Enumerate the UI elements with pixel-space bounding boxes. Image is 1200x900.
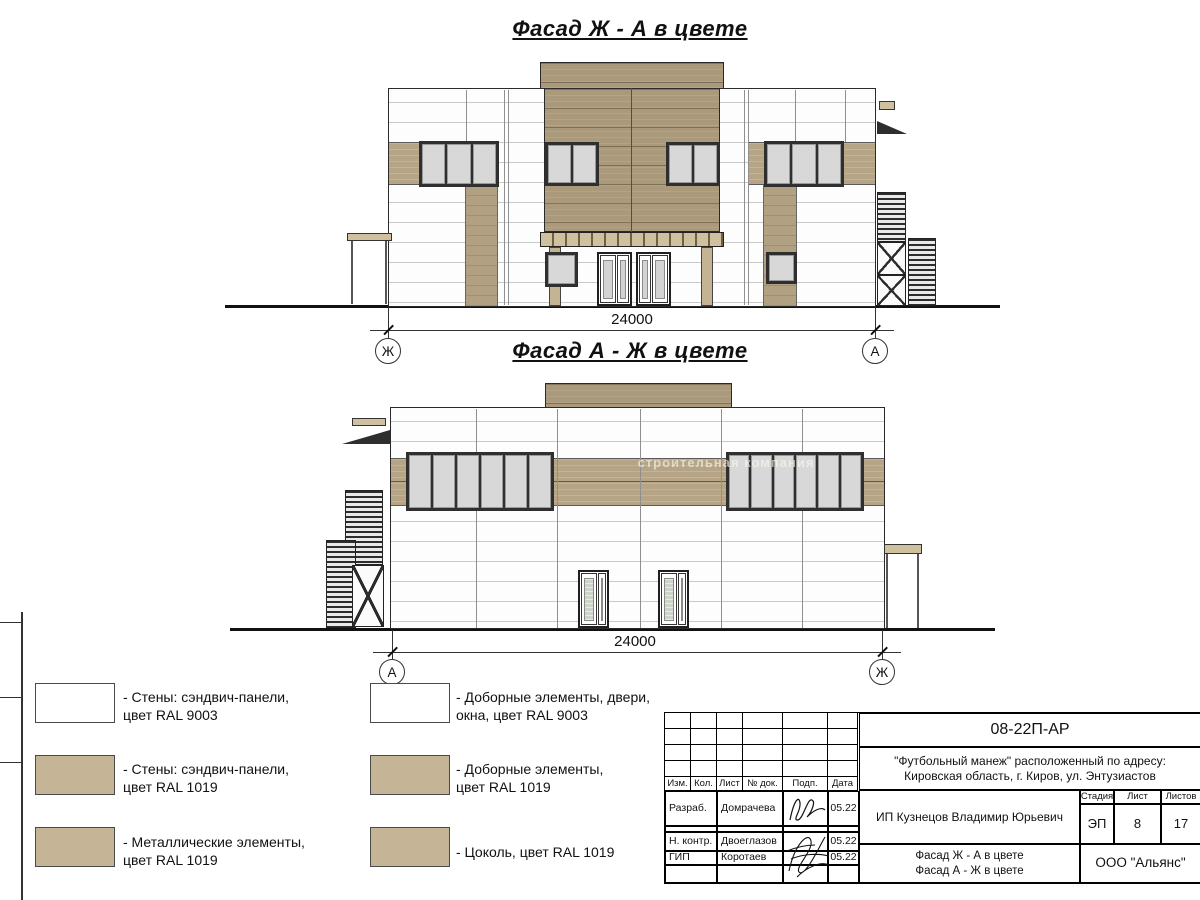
- door: [658, 570, 689, 628]
- facade2-wall: [390, 407, 885, 629]
- col-header: Лист: [717, 777, 743, 791]
- window: [545, 142, 599, 186]
- legend-swatch-ral1019: [35, 755, 115, 795]
- door-glass: [664, 578, 674, 621]
- grid-cell: [743, 745, 783, 761]
- grid-cell: [665, 865, 717, 883]
- window-pane: [409, 455, 431, 508]
- legend-line: - Доборные элементы, двери,: [456, 688, 696, 706]
- legend-swatch-ral9003: [35, 683, 115, 723]
- fire-stair: [908, 238, 936, 306]
- frame-line: [21, 612, 23, 900]
- central-joint: [631, 88, 632, 232]
- legend-label: - Цоколь, цвет RAL 1019: [456, 843, 696, 861]
- parapet-2: [545, 383, 732, 409]
- door-leaf: [678, 573, 686, 625]
- facade1-title: Фасад Ж - А в цвете: [430, 16, 830, 42]
- entrance-canopy: [540, 232, 724, 247]
- side-canopy: [347, 233, 392, 241]
- window-pane: [473, 144, 496, 184]
- grid-cell: [717, 713, 743, 729]
- legend-swatch-ral1019: [35, 827, 115, 867]
- role-cell: Н. контр.: [665, 832, 717, 851]
- company-cell: ООО "Альянс": [1080, 844, 1200, 883]
- col-header: Кол.: [691, 777, 717, 791]
- tan-stripe: [465, 185, 498, 306]
- roof-canopy-bar: [879, 101, 895, 110]
- grid-cell: [717, 729, 743, 745]
- project-line: Кировская область, г. Киров, ул. Энтузиа…: [904, 769, 1156, 784]
- legend-label: - Доборные элементы, цвет RAL 1019: [456, 760, 696, 796]
- drawing-title-line: Фасад А - Ж в цвете: [915, 864, 1023, 878]
- canopy-post: [886, 554, 888, 628]
- col-header: Дата: [828, 777, 858, 791]
- window-pane: [481, 455, 503, 508]
- frame-tick: [0, 622, 21, 623]
- door-glass: [620, 260, 626, 299]
- stage-value-cell: ЭП: [1080, 804, 1114, 844]
- dimension-line: [373, 652, 901, 653]
- stair-brace: [877, 242, 906, 275]
- door-leaf: [600, 255, 616, 303]
- legend-line: цвет RAL 1019: [456, 778, 696, 796]
- parapet-1: [540, 62, 724, 90]
- axis-mark: Ж: [869, 659, 895, 685]
- panel-joint: [721, 409, 722, 628]
- axis-mark: А: [862, 338, 888, 364]
- stage-label-cell: Стадия: [1080, 790, 1114, 804]
- entrance-door: [636, 252, 671, 306]
- window-small: [766, 252, 797, 284]
- sheet-value-cell: 8: [1114, 804, 1161, 844]
- role-cell: ГИП: [665, 851, 717, 865]
- door-glass: [603, 260, 613, 299]
- grid-cell: [783, 729, 828, 745]
- window-pane: [548, 145, 571, 183]
- date-cell: 05.22: [828, 791, 859, 826]
- window-pane: [818, 144, 841, 184]
- grid-cell: [691, 713, 717, 729]
- tan-band-segment: [389, 142, 420, 185]
- grid-cell: [665, 713, 691, 729]
- window-pane: [767, 144, 790, 184]
- roof-canopy-wedge: [877, 121, 907, 134]
- signature: [784, 792, 828, 826]
- stair-brace: [877, 275, 906, 306]
- sheet-label-cell: Лист: [1114, 790, 1161, 804]
- door-leaf: [581, 573, 597, 625]
- window-pane: [792, 144, 815, 184]
- door: [578, 570, 609, 628]
- window-pane: [548, 255, 575, 284]
- window-pane: [769, 255, 794, 281]
- grid-cell: [783, 745, 828, 761]
- panel-joint: [476, 409, 477, 628]
- project-cell: "Футбольный манеж" расположенный по адре…: [859, 747, 1200, 790]
- roof-canopy-bar: [352, 418, 386, 426]
- legend-line: - Стены: сэндвич-панели,: [123, 760, 353, 778]
- facade2-title: Фасад А - Ж в цвете: [430, 338, 830, 364]
- frame-tick: [0, 697, 21, 698]
- grid-cell: [691, 745, 717, 761]
- window: [764, 141, 844, 187]
- axis-mark: А: [379, 659, 405, 685]
- legend-line: - Цоколь, цвет RAL 1019: [456, 843, 696, 861]
- axis-mark: Ж: [375, 338, 401, 364]
- title-block: Изм. Кол. Лист № док. Подп. Дата Разраб.…: [664, 712, 1200, 884]
- door-leaf: [598, 573, 606, 625]
- panel-joint: [557, 409, 558, 628]
- dimension-value: 24000: [562, 311, 702, 328]
- role-cell: Разраб.: [665, 791, 717, 826]
- drawing-title-line: Фасад Ж - А в цвете: [915, 849, 1023, 863]
- legend-label: - Доборные элементы, двери, окна, цвет R…: [456, 688, 696, 724]
- roof-canopy-wedge: [342, 430, 390, 444]
- name-cell: Двоеглазов: [717, 832, 783, 851]
- grid-cell: [783, 713, 828, 729]
- project-line: "Футбольный манеж" расположенный по адре…: [894, 754, 1166, 769]
- window-pane: [669, 145, 692, 183]
- door-leaf: [639, 255, 651, 303]
- col-header: № док.: [743, 777, 783, 791]
- window-pane: [529, 455, 551, 508]
- door-leaf: [661, 573, 677, 625]
- grid-cell: [691, 729, 717, 745]
- panel-joint: [466, 90, 467, 141]
- legend-label: - Стены: сэндвич-панели, цвет RAL 1019: [123, 760, 353, 796]
- entrance-door: [597, 252, 632, 306]
- grid-cell: [665, 729, 691, 745]
- grid-cell: [691, 761, 717, 777]
- tan-stripe: [763, 185, 797, 306]
- fire-stair: [877, 192, 906, 242]
- col-header: Подп.: [783, 777, 828, 791]
- legend-swatch-ral1019: [370, 827, 450, 867]
- window-pane: [447, 144, 470, 184]
- name-cell: Коротаев: [717, 851, 783, 865]
- window-pane: [422, 144, 445, 184]
- grid-cell: [743, 713, 783, 729]
- revision-grid: Изм. Кол. Лист № док. Подп. Дата: [665, 713, 858, 791]
- grid-cell: [717, 761, 743, 777]
- panel-joint: [640, 409, 641, 628]
- extension-line: [388, 307, 389, 338]
- stair-brace: [352, 565, 384, 627]
- canopy-post: [351, 241, 353, 304]
- panel-joint: [504, 90, 505, 305]
- window-pane: [457, 455, 479, 508]
- door-glass: [584, 578, 594, 621]
- grid-cell: [828, 729, 858, 745]
- grid-cell: [828, 761, 858, 777]
- drawing-title-cell: Фасад Ж - А в цвете Фасад А - Ж в цвете: [859, 844, 1080, 883]
- panel-joint: [795, 90, 796, 141]
- window-small: [545, 252, 578, 287]
- legend-line: окна, цвет RAL 9003: [456, 706, 696, 724]
- window: [666, 142, 720, 186]
- grid-cell: [665, 761, 691, 777]
- side-canopy: [884, 544, 922, 554]
- dimension-line: [370, 330, 894, 331]
- name-cell: Домрачева: [717, 791, 783, 826]
- grid-cell: [717, 865, 783, 883]
- legend-line: цвет RAL 1019: [123, 778, 353, 796]
- grid-cell: [743, 761, 783, 777]
- window: [419, 141, 499, 187]
- legend-line: цвет RAL 9003: [123, 706, 353, 724]
- grid-cell: [828, 713, 858, 729]
- legend-swatch-ral1019: [370, 755, 450, 795]
- door-glass: [655, 260, 665, 299]
- canopy-column: [701, 247, 713, 306]
- legend-label: - Стены: сэндвич-панели, цвет RAL 9003: [123, 688, 353, 724]
- legend-line: - Стены: сэндвич-панели,: [123, 688, 353, 706]
- window-pane: [694, 145, 717, 183]
- legend-line: цвет RAL 1019: [123, 851, 353, 869]
- door-leaf: [617, 255, 629, 303]
- legend-line: - Металлические элементы,: [123, 833, 353, 851]
- col-header: Изм.: [665, 777, 691, 791]
- panel-joint: [845, 90, 846, 142]
- door-leaf: [652, 255, 668, 303]
- extension-line: [392, 630, 393, 660]
- grid-cell: [717, 745, 743, 761]
- panel-joint: [748, 90, 749, 305]
- legend-label: - Металлические элементы, цвет RAL 1019: [123, 833, 353, 869]
- signature: [777, 827, 833, 881]
- drawing-sheet: Фасад Ж - А в цвете: [0, 0, 1200, 900]
- window-pane: [573, 145, 596, 183]
- doc-number-cell: 08-22П-АР: [859, 713, 1200, 747]
- window-pane: [433, 455, 455, 508]
- sheets-value-cell: 17: [1161, 804, 1200, 844]
- grid-cell: [828, 745, 858, 761]
- panel-joint: [744, 90, 745, 305]
- frame-tick: [0, 762, 21, 763]
- legend-swatch-ral9003: [370, 683, 450, 723]
- canopy-post: [917, 554, 919, 628]
- panel-joint: [508, 90, 509, 305]
- sheets-label-cell: Листов: [1161, 790, 1200, 804]
- window-strip: [406, 452, 554, 511]
- window-pane: [505, 455, 527, 508]
- tan-band-segment: [843, 142, 875, 185]
- extension-line: [882, 630, 883, 660]
- door-glass: [601, 578, 603, 621]
- door-glass: [681, 578, 683, 621]
- client-cell: ИП Кузнецов Владимир Юрьевич: [859, 790, 1080, 844]
- legend-line: - Доборные элементы,: [456, 760, 696, 778]
- door-glass: [642, 260, 648, 299]
- watermark: строительная компания: [596, 455, 856, 470]
- grid-cell: [665, 745, 691, 761]
- extension-line: [875, 307, 876, 338]
- panel-joint: [802, 409, 803, 628]
- dimension-value: 24000: [565, 633, 705, 650]
- grid-cell: [743, 729, 783, 745]
- canopy-post: [385, 241, 387, 304]
- grid-cell: [783, 761, 828, 777]
